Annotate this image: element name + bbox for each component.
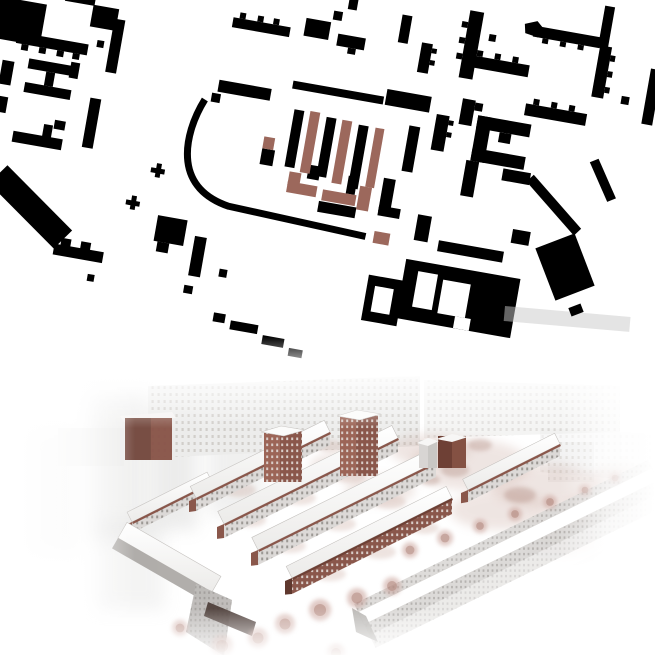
building-footprint — [461, 21, 468, 28]
building-footprint — [568, 105, 575, 112]
building-footprint — [431, 48, 437, 54]
highlighted-new-building — [262, 136, 275, 150]
building-footprint — [456, 53, 463, 60]
building-footprint — [239, 12, 246, 19]
building-footprint — [498, 132, 512, 144]
tree-crown — [476, 522, 484, 530]
building-footprint — [87, 274, 95, 282]
building-footprint — [494, 53, 501, 60]
building-footprint — [54, 120, 66, 131]
building-footprint — [542, 38, 549, 44]
tree-crown — [441, 534, 450, 543]
building-footprint — [333, 11, 343, 21]
building-footprint — [273, 18, 280, 25]
building-footprint — [446, 132, 452, 138]
building-footprint — [448, 120, 454, 126]
building-footprint — [183, 285, 193, 294]
building-footprint — [257, 16, 264, 23]
building-footprint — [218, 269, 227, 278]
building-footprint — [477, 50, 484, 57]
tree-crown — [546, 498, 554, 506]
building-footprint — [96, 40, 104, 48]
building-footprint — [610, 55, 616, 62]
aerial-3d-rendering — [0, 370, 655, 655]
courtyard-tree — [504, 487, 536, 503]
building-footprint — [38, 47, 46, 54]
building-footprint — [56, 50, 64, 57]
building-footprint — [260, 148, 276, 166]
courtyard-void — [437, 280, 470, 318]
courtyard-tree — [468, 439, 492, 451]
building-footprint — [474, 103, 483, 112]
render-bottom-fade — [0, 608, 655, 655]
building-footprint — [21, 44, 29, 51]
building-footprint — [559, 41, 566, 47]
building-footprint — [620, 96, 629, 105]
tree-crown — [387, 581, 397, 591]
building-footprint — [577, 44, 584, 50]
building-footprint — [72, 53, 80, 60]
building-footprint — [604, 87, 610, 94]
tree-crown — [511, 510, 519, 518]
building-footprint — [512, 56, 519, 63]
architecture-presentation-board — [0, 0, 655, 655]
site-plan-figure-ground-map — [0, 0, 655, 375]
tree-crown — [406, 546, 415, 555]
building-footprint — [211, 93, 221, 103]
tower-left-face — [264, 432, 280, 482]
building-footprint — [154, 215, 188, 246]
building-footprint — [533, 99, 540, 106]
building-footprint — [551, 102, 558, 109]
building-footprint — [80, 241, 91, 251]
building-footprint — [156, 241, 170, 253]
building-footprint — [459, 37, 466, 44]
tree-crown — [352, 593, 363, 604]
tower-right-face — [280, 430, 302, 482]
building-footprint — [607, 71, 613, 78]
building-footprint — [429, 60, 435, 66]
building-footprint — [488, 34, 496, 42]
